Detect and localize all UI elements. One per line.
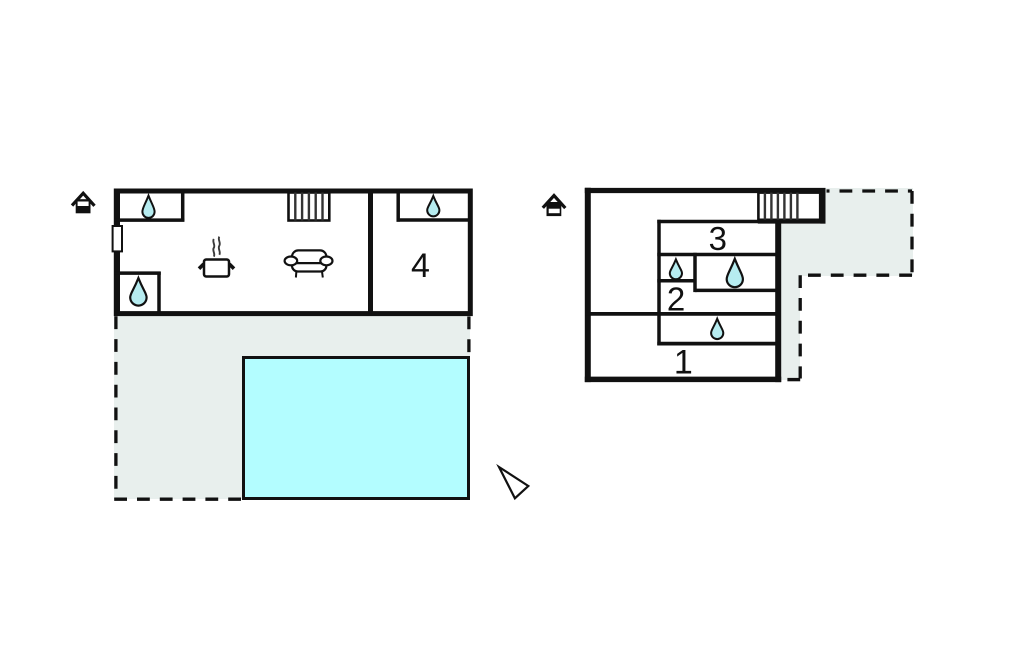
svg-text:3: 3 — [709, 220, 727, 257]
svg-text:2: 2 — [667, 281, 685, 318]
svg-text:4: 4 — [411, 247, 430, 285]
svg-text:1: 1 — [674, 344, 693, 382]
